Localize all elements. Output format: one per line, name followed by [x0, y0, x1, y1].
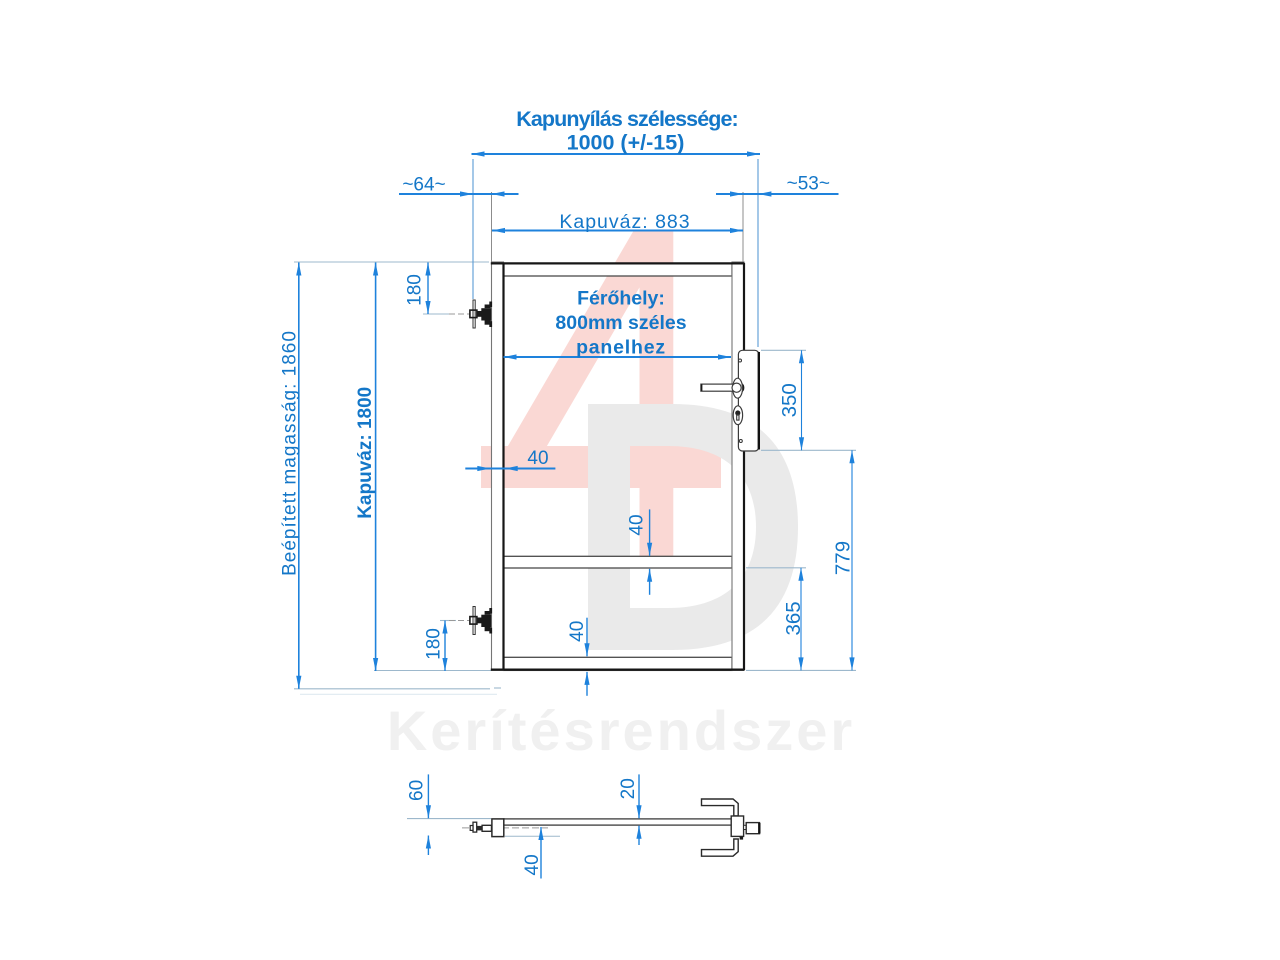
svg-text:365: 365	[782, 601, 805, 635]
svg-text:Kapuváz: 883: Kapuváz: 883	[559, 211, 690, 233]
svg-text:60: 60	[407, 780, 428, 801]
svg-text:40: 40	[567, 621, 588, 642]
svg-text:Beépített magasság: 1860: Beépített magasság: 1860	[280, 330, 301, 576]
svg-text:~64~: ~64~	[402, 175, 445, 196]
svg-text:180: 180	[424, 628, 445, 660]
svg-text:Férőhely:: Férőhely:	[577, 288, 665, 310]
svg-text:800mm széles: 800mm széles	[555, 312, 686, 334]
svg-text:40: 40	[527, 448, 548, 469]
svg-text:~53~: ~53~	[787, 174, 830, 195]
svg-text:Kapuváz: 1800: Kapuváz: 1800	[355, 387, 376, 519]
svg-text:Kapunyílás szélessége:: Kapunyílás szélessége:	[516, 107, 738, 131]
svg-text:40: 40	[522, 854, 543, 875]
svg-text:20: 20	[618, 778, 639, 799]
svg-text:779: 779	[831, 541, 854, 575]
svg-text:Kerítésrendszer: Kerítésrendszer	[387, 699, 855, 762]
svg-text:panelhez: panelhez	[576, 337, 666, 359]
svg-text:180: 180	[405, 274, 426, 306]
svg-text:1000 (+/-15): 1000 (+/-15)	[567, 131, 685, 155]
svg-text:350: 350	[778, 383, 801, 417]
svg-text:40: 40	[627, 514, 648, 535]
